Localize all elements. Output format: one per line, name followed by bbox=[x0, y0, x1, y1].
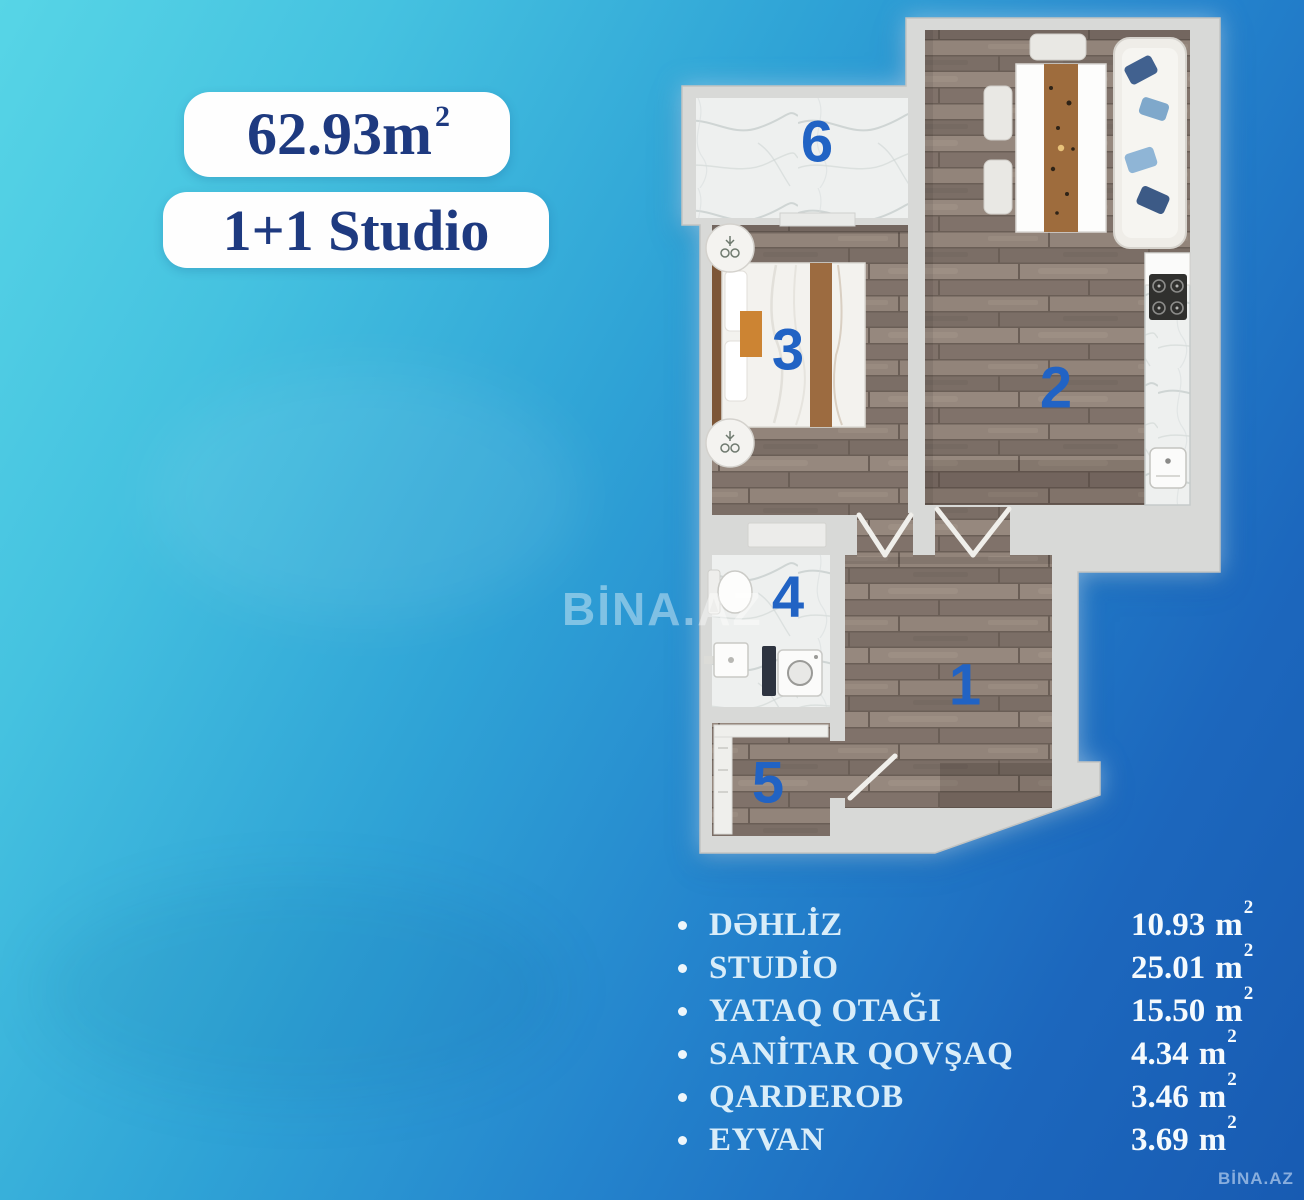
background-artifact bbox=[40, 880, 560, 1100]
bullet-icon bbox=[678, 964, 687, 973]
floor-plan: 1 2 3 4 5 6 bbox=[678, 8, 1226, 876]
layout-type-badge: 1+1 Studio bbox=[163, 192, 549, 268]
stove-icon bbox=[1149, 274, 1187, 320]
legend-item: SANİTAR QOVŞAQ 4.34m2 bbox=[670, 1033, 1270, 1076]
legend-item: DƏHLİZ 10.93m2 bbox=[670, 904, 1270, 947]
area-badge: 62.93m2 bbox=[184, 92, 510, 177]
legend-label: YATAQ OTAĞI bbox=[709, 993, 942, 1030]
room-number-6: 6 bbox=[801, 110, 833, 175]
legend-value: 3.69m2 bbox=[1131, 1122, 1236, 1159]
legend-item: STUDİO 25.01m2 bbox=[670, 947, 1270, 990]
watermark-corner: BİNA.AZ bbox=[1218, 1169, 1294, 1189]
bathroom-door bbox=[748, 523, 826, 547]
bullet-icon bbox=[678, 1136, 687, 1145]
area-badge-superscript: 2 bbox=[435, 100, 450, 134]
layout-type-label: 1+1 Studio bbox=[223, 197, 490, 264]
balcony-door bbox=[780, 213, 855, 226]
kitchen-sink bbox=[1150, 448, 1186, 488]
room-legend: DƏHLİZ 10.93m2 STUDİO 25.01m2 YATAQ OTAĞ… bbox=[670, 904, 1270, 1162]
area-badge-value: 62.93m bbox=[247, 100, 432, 169]
legend-value: 25.01m2 bbox=[1131, 950, 1252, 987]
legend-value: 3.46m2 bbox=[1131, 1079, 1236, 1116]
room-number-1: 1 bbox=[949, 653, 981, 718]
flyer-canvas: 62.93m2 1+1 Studio bbox=[0, 0, 1304, 1200]
bed-throw bbox=[740, 311, 762, 357]
legend-item: QARDEROB 3.46m2 bbox=[670, 1076, 1270, 1119]
room-number-4: 4 bbox=[772, 565, 804, 630]
background-artifact bbox=[150, 370, 580, 620]
bathroom-cabinet bbox=[762, 646, 776, 696]
legend-item: EYVAN 3.69m2 bbox=[670, 1119, 1270, 1162]
nightstand bbox=[706, 419, 754, 467]
legend-label: QARDEROB bbox=[709, 1079, 904, 1116]
chair bbox=[984, 86, 1012, 140]
bullet-icon bbox=[678, 921, 687, 930]
legend-value: 4.34m2 bbox=[1131, 1036, 1236, 1073]
legend-label: DƏHLİZ bbox=[709, 907, 843, 944]
chair bbox=[1030, 34, 1086, 60]
bed-blanket bbox=[810, 263, 832, 427]
shadow bbox=[940, 763, 1052, 808]
washing-machine bbox=[778, 650, 822, 696]
room-number-3: 3 bbox=[772, 318, 804, 383]
room-number-5: 5 bbox=[752, 751, 784, 816]
shadow bbox=[925, 30, 933, 505]
sofa bbox=[1114, 38, 1186, 248]
legend-value: 15.50m2 bbox=[1131, 993, 1252, 1030]
legend-label: SANİTAR QOVŞAQ bbox=[709, 1036, 1013, 1073]
legend-item: YATAQ OTAĞI 15.50m2 bbox=[670, 990, 1270, 1033]
watermark-center: BİNA.AZ bbox=[562, 582, 763, 636]
bullet-icon bbox=[678, 1007, 687, 1016]
legend-value: 10.93m2 bbox=[1131, 907, 1252, 944]
legend-label: EYVAN bbox=[709, 1122, 825, 1159]
chair bbox=[984, 160, 1012, 214]
legend-label: STUDİO bbox=[709, 950, 839, 987]
room-number-2: 2 bbox=[1040, 356, 1072, 421]
nightstand bbox=[706, 224, 754, 272]
double-door bbox=[935, 507, 1010, 557]
double-door bbox=[857, 513, 913, 557]
bullet-icon bbox=[678, 1050, 687, 1059]
bullet-icon bbox=[678, 1093, 687, 1102]
